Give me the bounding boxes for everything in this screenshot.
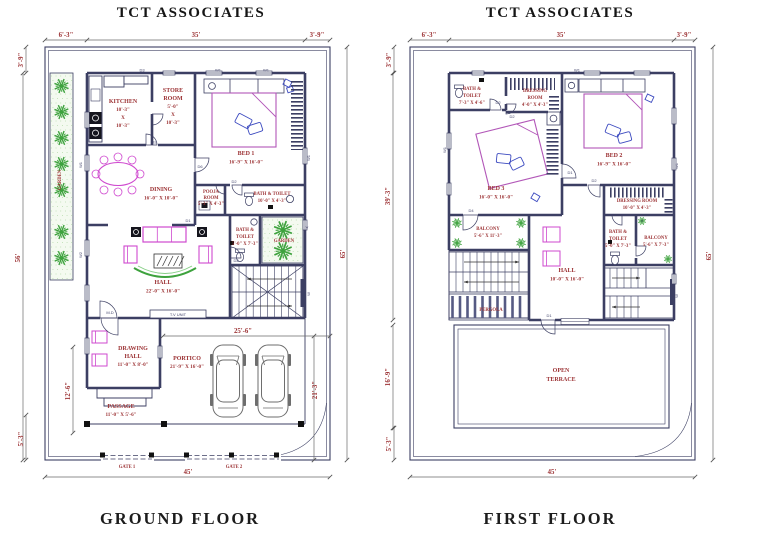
room-label-hall: HALL [154,280,171,286]
window-symbol [672,274,676,284]
gate1-label: GATE 1 [119,465,136,470]
room-size: 10'-0" X 4'-3" [623,206,652,211]
room-size: 10'-3" [166,120,180,126]
gate-post [184,453,189,458]
door-swing [232,185,242,195]
room-size: 16'-9" X 16'-0" [229,160,263,166]
gate-post [274,453,279,458]
door-tag: D6 [197,164,203,169]
dim-label: 65' [706,252,713,261]
window-tag: W [306,292,311,296]
window-symbol [447,133,451,149]
pillow-icon [509,157,525,171]
gf-caption: GROUND FLOOR [100,509,260,528]
gate-post [229,453,234,458]
tv-unit-label: T.V UNIT [170,312,187,317]
dim-label: 5'-3" [386,436,393,451]
room-size: 10'-3" [116,123,130,129]
room-size: 10'-3" [116,107,130,113]
room-label-hall: HALL [558,268,575,274]
column-post [298,421,304,427]
room-size: 21'-9" X 16'-0" [170,364,204,370]
room-label-dress1: DRESSING [523,89,547,94]
door-swing [152,114,163,125]
window-symbol [158,346,162,358]
gate2-label: GATE 2 [226,465,243,470]
room-label-terrace: TERRACE [546,377,575,383]
door-tag: D1 [185,218,191,223]
window-tag: W1 [306,154,311,161]
pillow-icon [496,153,511,163]
vent-tag: V [641,218,644,223]
room-label-store: STORE [163,88,183,94]
window-tag: W1 [215,68,222,73]
column-post [161,421,167,427]
pillow-icon [247,122,263,135]
gate-post [100,453,105,458]
room-label-portico: PORTICO [173,356,201,362]
window-symbol [85,155,89,171]
dim-label: 12'-6" [65,382,72,400]
chair-icon [543,227,560,242]
room-label-garden: GARDEN [274,239,295,244]
chair-icon [92,354,107,366]
room-label-terrace: OPEN [553,368,570,374]
dim-label: 65' [340,250,347,259]
dim-label: 45' [184,469,193,476]
room-label-balcony2: BALCONY [644,236,668,241]
room-size: 11'-0" X 8'-0" [117,362,148,368]
plant-icon [452,218,461,227]
room-size: X [171,112,175,118]
floor-plan-sheet: TCT ASSOCIATES 6'-3" 35' 3'-9" 3'-9" 56'… [0,0,768,535]
dim-label: 25'-6" [234,328,252,335]
room-label-drawing-hall: HALL [124,354,141,360]
chair-icon [92,331,107,343]
room-size: 7'-3" X 4'-6" [459,101,485,106]
first-floor-panel: TCT ASSOCIATES 6'-3" 35' 3'-9" 3'-9" 39'… [384,0,768,535]
dim-label: 39'-3" [385,187,392,205]
door-tag: D2 [151,140,157,145]
door-swing [588,185,600,197]
door-tag: M.D [106,310,113,315]
company-title: TCT ASSOCIATES [486,5,634,21]
room-size: 5'-0" X 7'-3" [605,244,631,249]
room-size: 16'-9" X 16'-0" [597,162,631,168]
room-label-dining: DINING [150,187,173,193]
door-tag: D2 [231,179,237,184]
window-tag: W [674,294,679,298]
window-symbol [584,71,600,75]
room-size: 16'-0" X 10'-0" [144,196,178,202]
room-label-bath4: BATH & [609,230,627,235]
window-symbol [447,183,451,195]
room-label-kitchen: KITCHEN [109,99,138,105]
company-title: TCT ASSOCIATES [117,5,265,21]
door-tag: D3 [139,68,145,73]
vent-tag: V [306,225,309,230]
room-label-pooja: POOJA [203,190,219,195]
window-tag: W1 [78,161,83,168]
window-tag: W1 [263,68,270,73]
plant-icon [516,218,525,227]
plant-icon [452,238,461,247]
door-tag: D2 [495,100,501,105]
door-tag: D2 [233,258,239,263]
room-label-bath1: BATH & TOILET [254,192,292,197]
door-swing [541,320,555,334]
dim-label: 56' [15,254,22,263]
window-tag: W1 [574,68,581,73]
window-symbol [85,240,89,256]
room-label-bed3: BED 3 [488,186,505,192]
gate-post [149,453,154,458]
room-size: 5'-0" [167,104,178,110]
dining-table-icon [98,163,138,186]
room-label-dress2: DRESSING ROOM [617,199,658,204]
room-size: 4'-0" X 4'-3" [522,103,548,108]
room-size: 10'-0" X 16'-0" [550,277,584,283]
room-label-pergola: PERGOLA [479,308,503,313]
window-tag: W1 [674,162,679,169]
dim-label: 21'-3" [312,381,319,399]
car-icon [255,345,291,417]
plant-icon [664,255,672,263]
door-swing [101,318,118,335]
column-post [84,421,90,427]
toilet-icon [245,193,254,206]
door-tag: D1 [546,313,552,318]
dim-label: 3'-9" [18,52,25,67]
chair-icon [543,251,560,266]
window-tag: W2 [78,251,83,258]
room-label-dress1: ROOM [527,96,543,101]
window-symbol [163,71,175,75]
room-label-balcony1: BALCONY [476,227,500,232]
window-symbol [85,338,89,354]
dim-label: 6'-3" [59,32,74,39]
dim-label: 35' [557,32,566,39]
room-size: 5'-6" X 11'-3" [474,234,503,239]
dim-label: 45' [548,469,557,476]
window-symbol [472,71,484,75]
dim-label: 3'-9" [310,32,325,39]
plant-icon [516,238,525,247]
pillow-icon [235,113,253,129]
room-size: X [121,115,125,121]
room-size: 10'-0" X 4'-3" [258,199,287,204]
dim-label: 16'-9" [385,368,392,386]
room-label-store: ROOM [163,96,183,102]
dim-label: 5'-3" [18,431,25,446]
window-symbol [85,285,89,301]
dim-label: 6'-3" [422,32,437,39]
door-tag: D2 [509,114,515,119]
room-label-bed1: BED 1 [238,151,255,157]
room-size: 22'-0" X 16'-0" [146,289,180,295]
door-tag: D4 [468,208,474,213]
room-size: 5'-0" X 7'-3" [232,242,258,247]
window-tag: W1 [442,146,447,153]
door-tag: D1 [567,170,573,175]
ground-floor-panel: TCT ASSOCIATES 6'-3" 35' 3'-9" 3'-9" 56'… [0,0,384,535]
ff-caption: FIRST FLOOR [483,509,616,528]
site-corner-curve [635,403,692,457]
door-swing [612,215,622,225]
rug-arc [134,268,196,277]
site-corner-curve [270,403,327,457]
room-size: 16'-0" X 16'-0" [479,195,513,201]
room-label-drawing-hall: DRAWING [118,346,148,352]
window-symbol [672,108,676,124]
room-label-bath2: TOILET [236,235,255,240]
room-label-bath3: TOILET [463,94,482,99]
car-icon [210,345,246,417]
room-size: 5'-6" X 7'-3" [643,243,669,248]
dim-label: 3'-9" [677,32,692,39]
room-label-bed2: BED 2 [606,153,623,159]
room-label-passage: PASSAGE [107,404,134,410]
pillow-icon [605,124,621,138]
window-symbol [634,71,650,75]
bed3-furniture [476,120,548,189]
room-size: 5'-3" X 4'-3" [198,202,224,207]
window-symbol [85,112,89,128]
room-label-bath4: TOILET [609,237,628,242]
room-size: 11'-0" X 5'-6" [105,412,136,418]
room-label-garden-strip: GARDEN [58,169,63,190]
door-tag: D2 [591,178,597,183]
room-label-pooja: ROOM [203,196,219,201]
room-label-bath2: BATH & [236,228,254,233]
room-label-bath3: BATH & [463,87,481,92]
gf-decorations [51,71,307,461]
toilet-icon [611,252,620,265]
dim-label: 35' [192,32,201,39]
dim-label: 3'-9" [386,52,393,67]
